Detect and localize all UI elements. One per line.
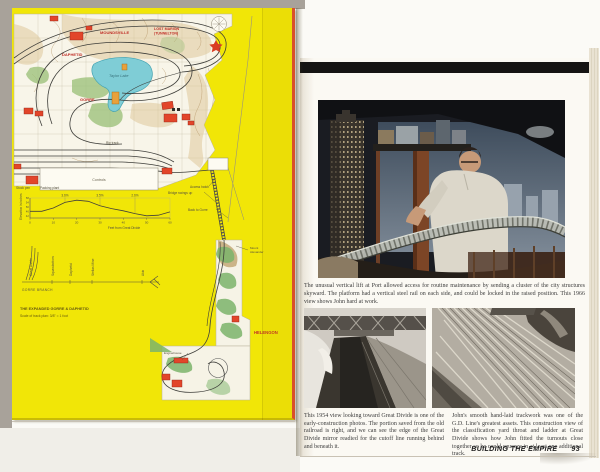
label-enginehouse: Enginehouse — [164, 351, 182, 355]
y-tick-label: 50 — [26, 205, 29, 209]
x-tick-label: 30 — [98, 221, 102, 225]
main-color-photo — [318, 100, 565, 278]
label-town-top-right-2: (TUNNELTON) — [154, 32, 179, 36]
label-rip-track: Rip track — [106, 141, 119, 145]
x-tick-label: 60 — [168, 221, 172, 225]
station-3: Stellas Mine — [91, 258, 95, 276]
plan-scale-note: Scale of track plan: 3/8" = 1 foot — [20, 314, 68, 318]
gutter-shadow — [296, 8, 303, 456]
fold-crease — [262, 8, 292, 420]
page-top-shadow-band — [300, 62, 589, 73]
compass-rose — [212, 17, 227, 32]
grade-annotations: 3.6%3.5%2.6% — [61, 194, 138, 213]
bw-left-art — [304, 308, 426, 408]
profile-ticks: 01020304050604246505458 — [26, 196, 172, 225]
label-packing-plant: Packing plant — [40, 186, 59, 190]
label-lake: Taylor Lake — [109, 74, 129, 78]
station-1: Squawbottom — [51, 256, 55, 276]
label-access-hatch: Access hatch — [190, 185, 209, 189]
book-spread-scan: MOUNDSVILLE LOST MARION (TUNNELTON) DAPH… — [0, 0, 600, 472]
grade-profile-chart: 01020304050604246505458 3.6%3.5%2.6% Fee… — [19, 193, 172, 230]
running-footer: BUILDING THE EMPIRE93 — [420, 446, 580, 453]
bw-photo-left — [304, 308, 426, 408]
page-bottom-edge — [300, 456, 596, 457]
photo-page: The unusual vertical lift at Port allowe… — [300, 58, 589, 456]
book-corner-shadow — [540, 453, 598, 465]
bw-right-art — [432, 308, 575, 408]
track-plan-page: MOUNDSVILLE LOST MARION (TUNNELTON) DAPH… — [12, 8, 295, 420]
scan-background — [0, 428, 300, 472]
grade-annotation: 3.5% — [96, 194, 103, 198]
liftout-bridge — [211, 158, 244, 240]
grade-annotation: 3.6% — [61, 194, 68, 198]
label-gorre: GORRE — [80, 97, 95, 102]
ceiling-light — [526, 126, 554, 138]
access-hatch-box — [208, 158, 228, 170]
footer-title: BUILDING THE EMPIRE — [471, 446, 557, 453]
x-tick-label: 40 — [122, 221, 126, 225]
y-tick-label: 42 — [26, 214, 29, 218]
main-photo-caption: The unusual vertical lift at Port allowe… — [304, 283, 585, 306]
main-photo-art — [318, 100, 565, 278]
map-page-bottom-edge — [12, 421, 295, 422]
branch-schematic: Great Divide Squawbottom Daphetid Stella… — [22, 246, 160, 292]
track-plan-map: MOUNDSVILLE LOST MARION (TUNNELTON) DAPH… — [12, 8, 295, 420]
x-tick-label: 20 — [75, 221, 79, 225]
scanner-margin-left — [0, 0, 12, 428]
label-back-to-gorre: Back to Gorre — [188, 208, 208, 212]
y-tick-label: 58 — [26, 196, 29, 200]
label-town-top-left: MOUNDSVILLE — [100, 30, 129, 35]
branch-line-label: GORRE BRANCH — [22, 288, 53, 292]
grade-annotation: 2.6% — [131, 194, 138, 198]
station-4: Akin — [141, 270, 145, 276]
page-number: 93 — [571, 446, 580, 453]
fold-guide-lines — [228, 16, 252, 222]
book-fore-edge — [589, 48, 599, 458]
label-town-top-right-1: LOST MARION — [154, 27, 180, 31]
label-bridge-swings-up: Bridge swings up — [168, 191, 193, 195]
x-tick-label: 50 — [145, 221, 149, 225]
x-tick-label: 0 — [29, 221, 31, 225]
x-tick-label: 10 — [52, 221, 56, 225]
label-daphetid: DAPHETID — [62, 52, 83, 57]
profile-ylabel: Elevation in inches — [19, 193, 23, 220]
station-2: Daphetid — [69, 263, 73, 276]
bw-photo-right — [432, 308, 575, 408]
plan-title: THE EXPANDED GORRE & DAPHETID — [20, 307, 89, 311]
label-stock-pen: Stock pen — [16, 186, 30, 190]
profile-xlabel: Feet from Great Divide — [108, 226, 140, 230]
y-tick-label: 46 — [26, 209, 29, 213]
y-tick-label: 54 — [26, 200, 29, 204]
station-0: Great Divide — [29, 258, 33, 276]
label-controls: Controls — [92, 178, 106, 182]
